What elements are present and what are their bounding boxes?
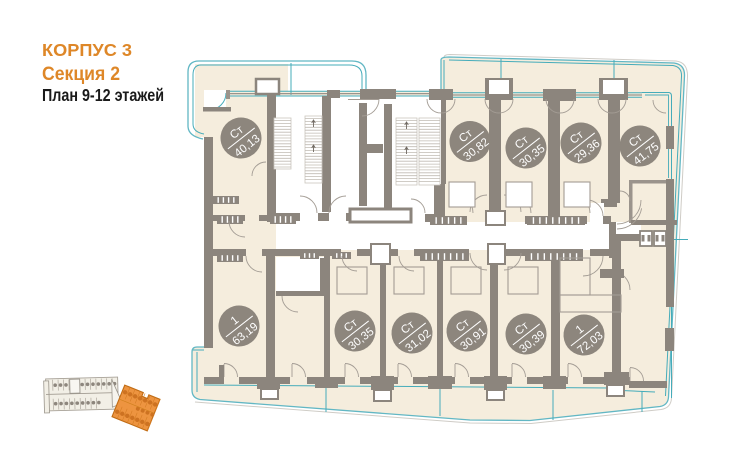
- svg-text:Секция 2: Секция 2: [42, 64, 120, 85]
- svg-text:КОРПУС 3: КОРПУС 3: [42, 40, 132, 60]
- svg-text:План 9-12 этажей: План 9-12 этажей: [42, 85, 164, 105]
